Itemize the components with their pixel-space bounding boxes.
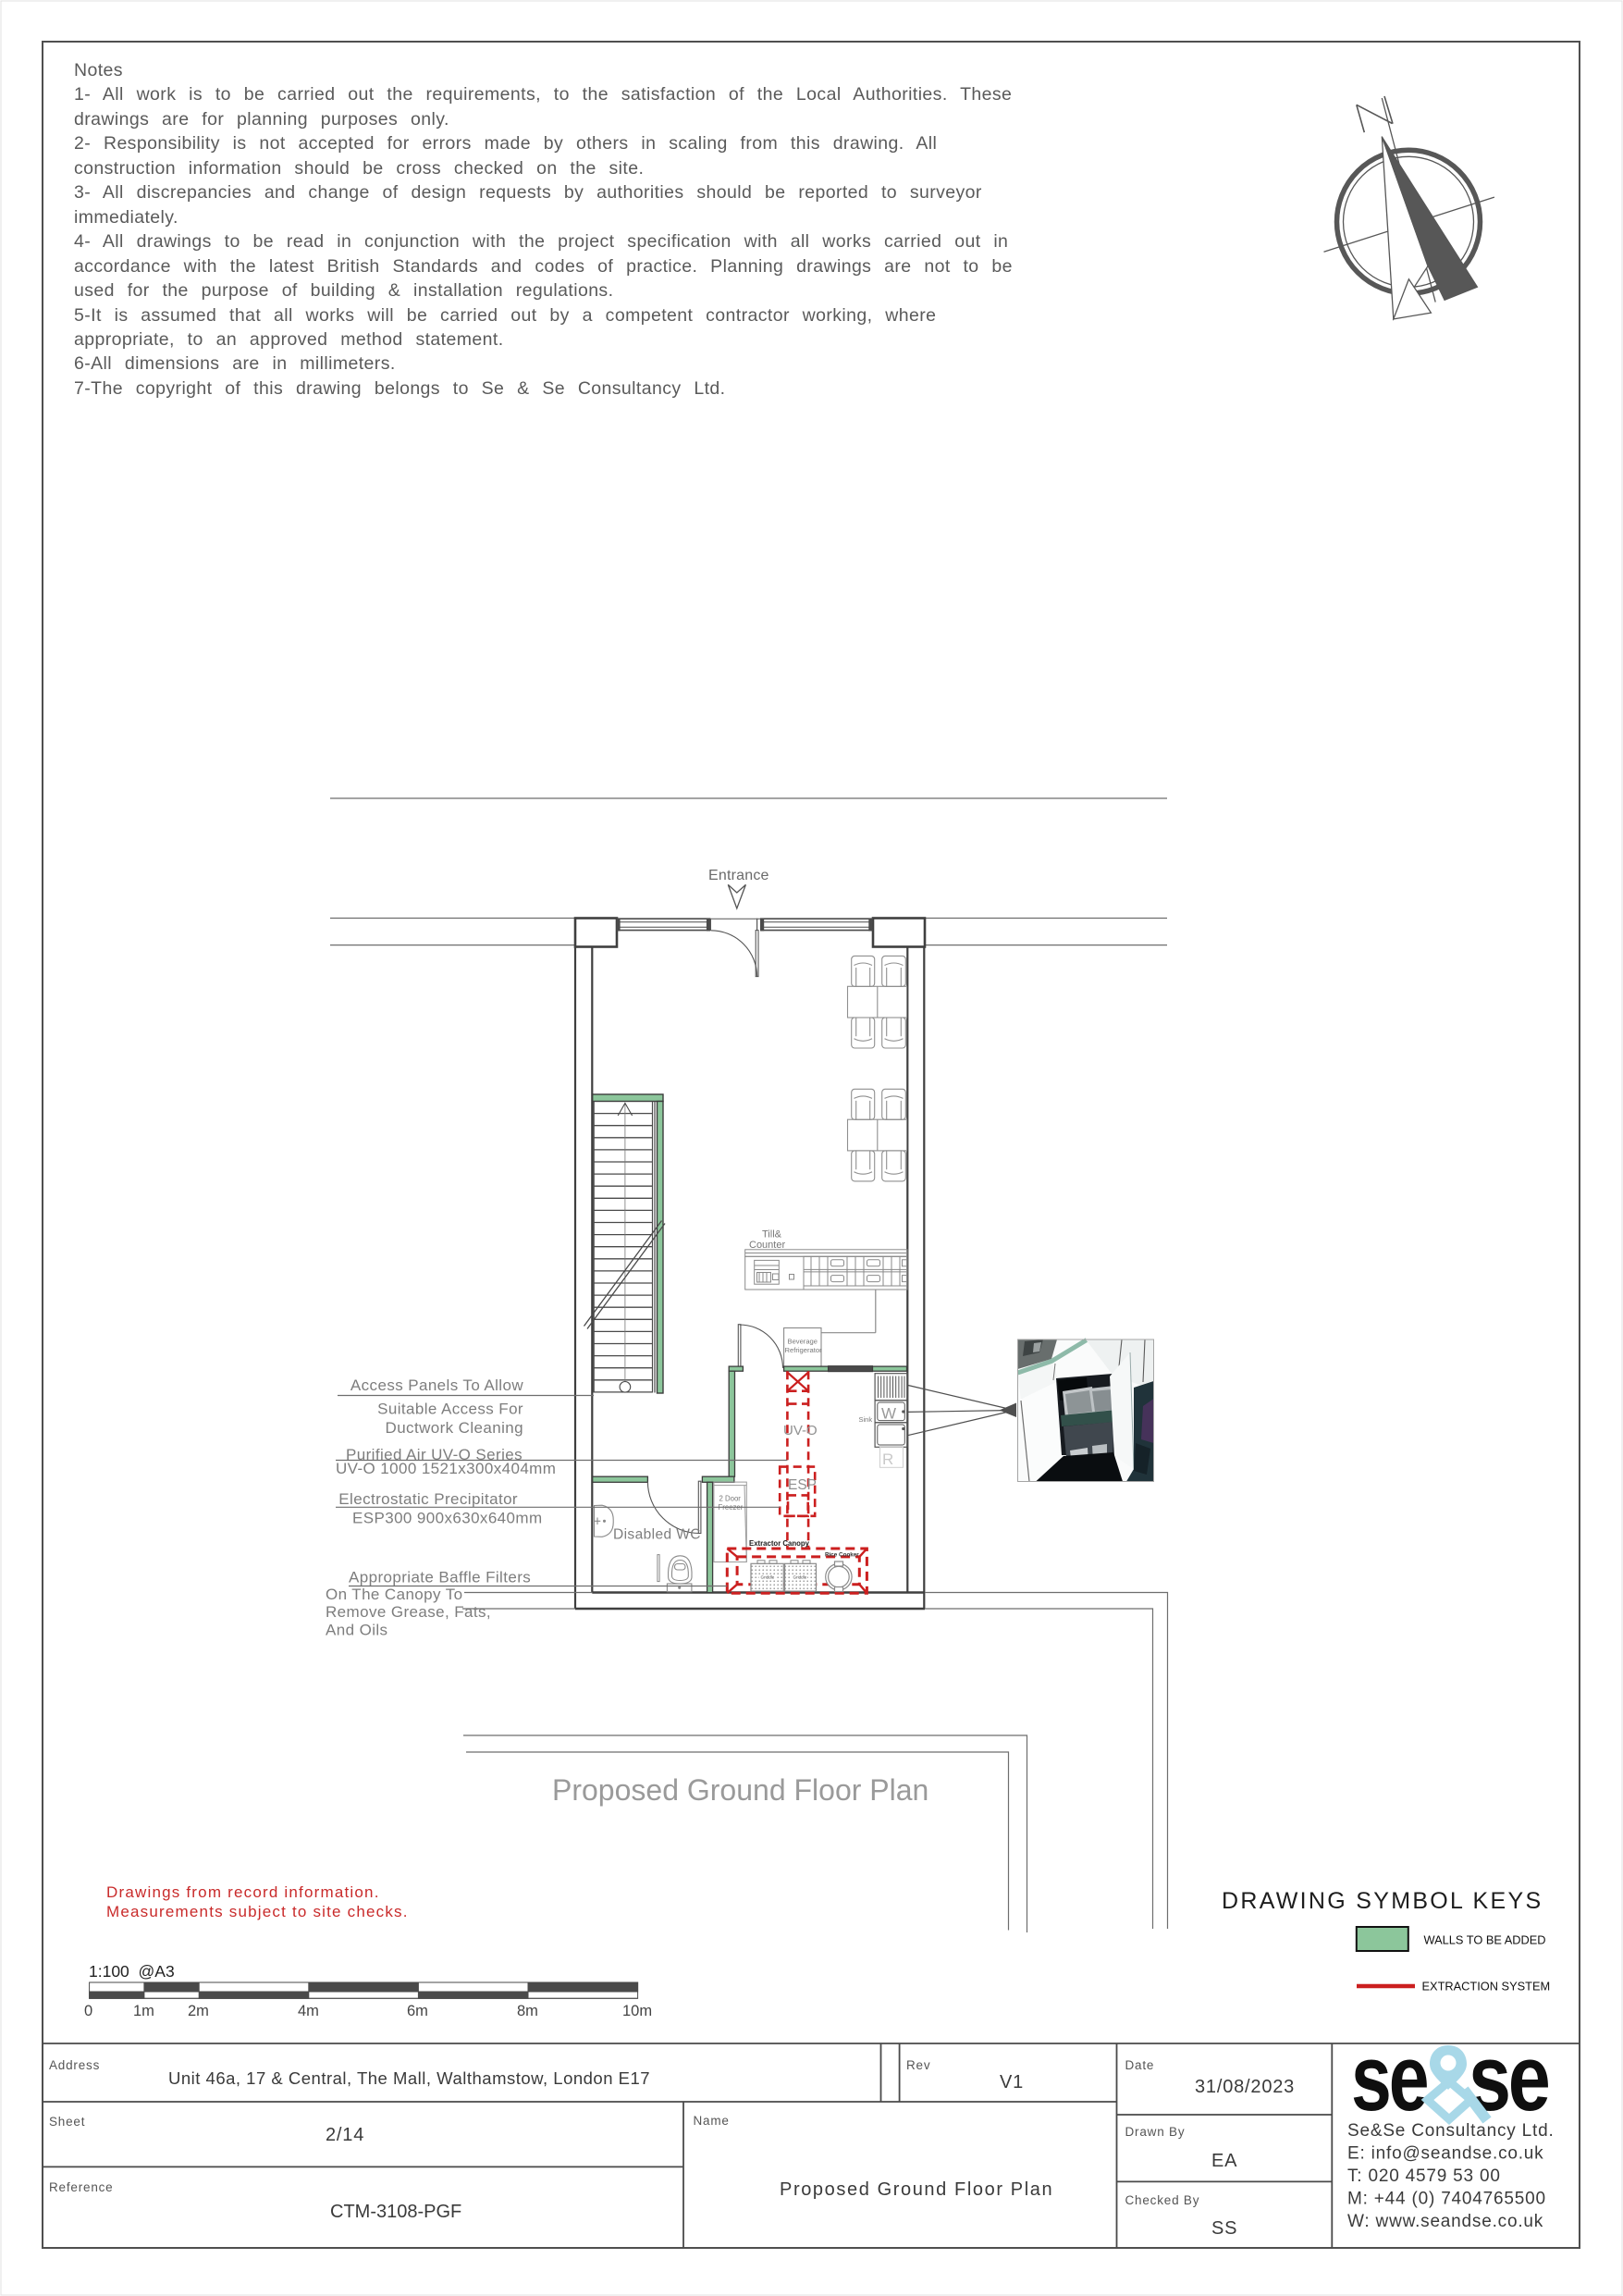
svg-text:T: 020 4579 53 00: T: 020 4579 53 00 bbox=[1347, 2166, 1501, 2186]
svg-text:Ductwork Cleaning: Ductwork Cleaning bbox=[386, 1419, 523, 1437]
svg-text:Entrance: Entrance bbox=[708, 868, 769, 883]
svg-text:31/08/2023: 31/08/2023 bbox=[1195, 2077, 1295, 2097]
svg-text:Remove Grease, Fats,: Remove Grease, Fats, bbox=[326, 1603, 491, 1621]
svg-text:SS: SS bbox=[1211, 2218, 1237, 2239]
svg-text:Electrostatic Precipitator: Electrostatic Precipitator bbox=[338, 1490, 518, 1508]
svg-text:Griddle: Griddle bbox=[761, 1575, 775, 1580]
svg-text:Suitable Access For: Suitable Access For bbox=[377, 1401, 523, 1418]
svg-text:8m: 8m bbox=[517, 2003, 538, 2019]
svg-text:0: 0 bbox=[84, 2003, 92, 2019]
svg-text:W: www.seandse.co.uk: W: www.seandse.co.uk bbox=[1347, 2212, 1543, 2231]
svg-text:M: +44 (0) 7404765500: M: +44 (0) 7404765500 bbox=[1347, 2190, 1546, 2209]
svg-text:Disabled WC: Disabled WC bbox=[613, 1527, 701, 1543]
svg-text:Appropriate Baffle Filters: Appropriate Baffle Filters bbox=[349, 1569, 531, 1586]
svg-text:CTM-3108-PGF: CTM-3108-PGF bbox=[330, 2202, 461, 2222]
svg-text:se: se bbox=[1351, 2027, 1427, 2131]
svg-text:Counter: Counter bbox=[749, 1240, 785, 1251]
svg-text:Sheet: Sheet bbox=[49, 2115, 85, 2129]
svg-text:ESP: ESP bbox=[788, 1477, 817, 1493]
svg-text:UV-O: UV-O bbox=[783, 1423, 818, 1438]
svg-text:Rice Cooker: Rice Cooker bbox=[825, 1552, 859, 1559]
svg-text:ESP300 900x630x640mm: ESP300 900x630x640mm bbox=[352, 1510, 543, 1527]
svg-text:1:100 @A3: 1:100 @A3 bbox=[89, 1962, 175, 1981]
svg-text:Address: Address bbox=[49, 2058, 100, 2072]
svg-text:Access Panels To Allow: Access Panels To Allow bbox=[350, 1376, 523, 1394]
svg-text:Refrigerator: Refrigerator bbox=[785, 1346, 823, 1354]
svg-text:10m: 10m bbox=[622, 2003, 652, 2019]
svg-text:W: W bbox=[881, 1405, 896, 1423]
svg-text:Reference: Reference bbox=[49, 2180, 114, 2194]
svg-text:And Oils: And Oils bbox=[326, 1622, 387, 1639]
svg-text:Drawn By: Drawn By bbox=[1125, 2125, 1186, 2139]
svg-text:2 Door: 2 Door bbox=[719, 1495, 742, 1503]
svg-text:R: R bbox=[882, 1450, 893, 1468]
svg-text:E: info@seandse.co.uk: E: info@seandse.co.uk bbox=[1347, 2144, 1543, 2164]
svg-text:Date: Date bbox=[1125, 2058, 1155, 2072]
svg-text:1m: 1m bbox=[133, 2003, 154, 2019]
svg-text:Till&: Till& bbox=[762, 1229, 782, 1241]
svg-text:Beverage: Beverage bbox=[788, 1338, 818, 1346]
svg-text:EXTRACTION SYSTEM: EXTRACTION SYSTEM bbox=[1422, 1980, 1551, 1994]
svg-text:Griddle: Griddle bbox=[793, 1575, 807, 1580]
svg-text:6m: 6m bbox=[407, 2003, 428, 2019]
svg-text:2m: 2m bbox=[188, 2003, 209, 2019]
svg-text:Checked By: Checked By bbox=[1125, 2193, 1200, 2207]
svg-text:On The Canopy To: On The Canopy To bbox=[326, 1586, 462, 1603]
svg-text:Proposed Ground Floor Plan: Proposed Ground Floor Plan bbox=[780, 2179, 1053, 2200]
svg-text:Unit 46a, 17 & Central, The Ma: Unit 46a, 17 & Central, The Mall, Waltha… bbox=[168, 2068, 650, 2088]
svg-text:2/14: 2/14 bbox=[326, 2125, 364, 2145]
svg-text:Se&Se Consultancy Ltd.: Se&Se Consultancy Ltd. bbox=[1347, 2121, 1555, 2141]
svg-text:V1: V1 bbox=[1000, 2072, 1024, 2092]
svg-text:UV-O 1000 1521x300x404mm: UV-O 1000 1521x300x404mm bbox=[336, 1460, 556, 1477]
svg-text:Proposed Ground Floor Plan: Proposed Ground Floor Plan bbox=[552, 1773, 928, 1807]
svg-text:Extractor Canopy: Extractor Canopy bbox=[749, 1539, 810, 1548]
svg-text:EA: EA bbox=[1211, 2151, 1237, 2171]
svg-text:WALLS TO BE ADDED: WALLS TO BE ADDED bbox=[1424, 1933, 1546, 1947]
svg-text:Sink: Sink bbox=[859, 1415, 873, 1424]
svg-text:Measurements subject to site c: Measurements subject to site checks. bbox=[106, 1903, 409, 1920]
svg-text:Name: Name bbox=[694, 2114, 730, 2128]
svg-text:Drawings from record informati: Drawings from record information. bbox=[106, 1883, 380, 1901]
svg-text:DRAWING SYMBOL KEYS: DRAWING SYMBOL KEYS bbox=[1222, 1888, 1543, 1914]
svg-text:4m: 4m bbox=[298, 2003, 319, 2019]
svg-text:Rev: Rev bbox=[906, 2058, 930, 2072]
